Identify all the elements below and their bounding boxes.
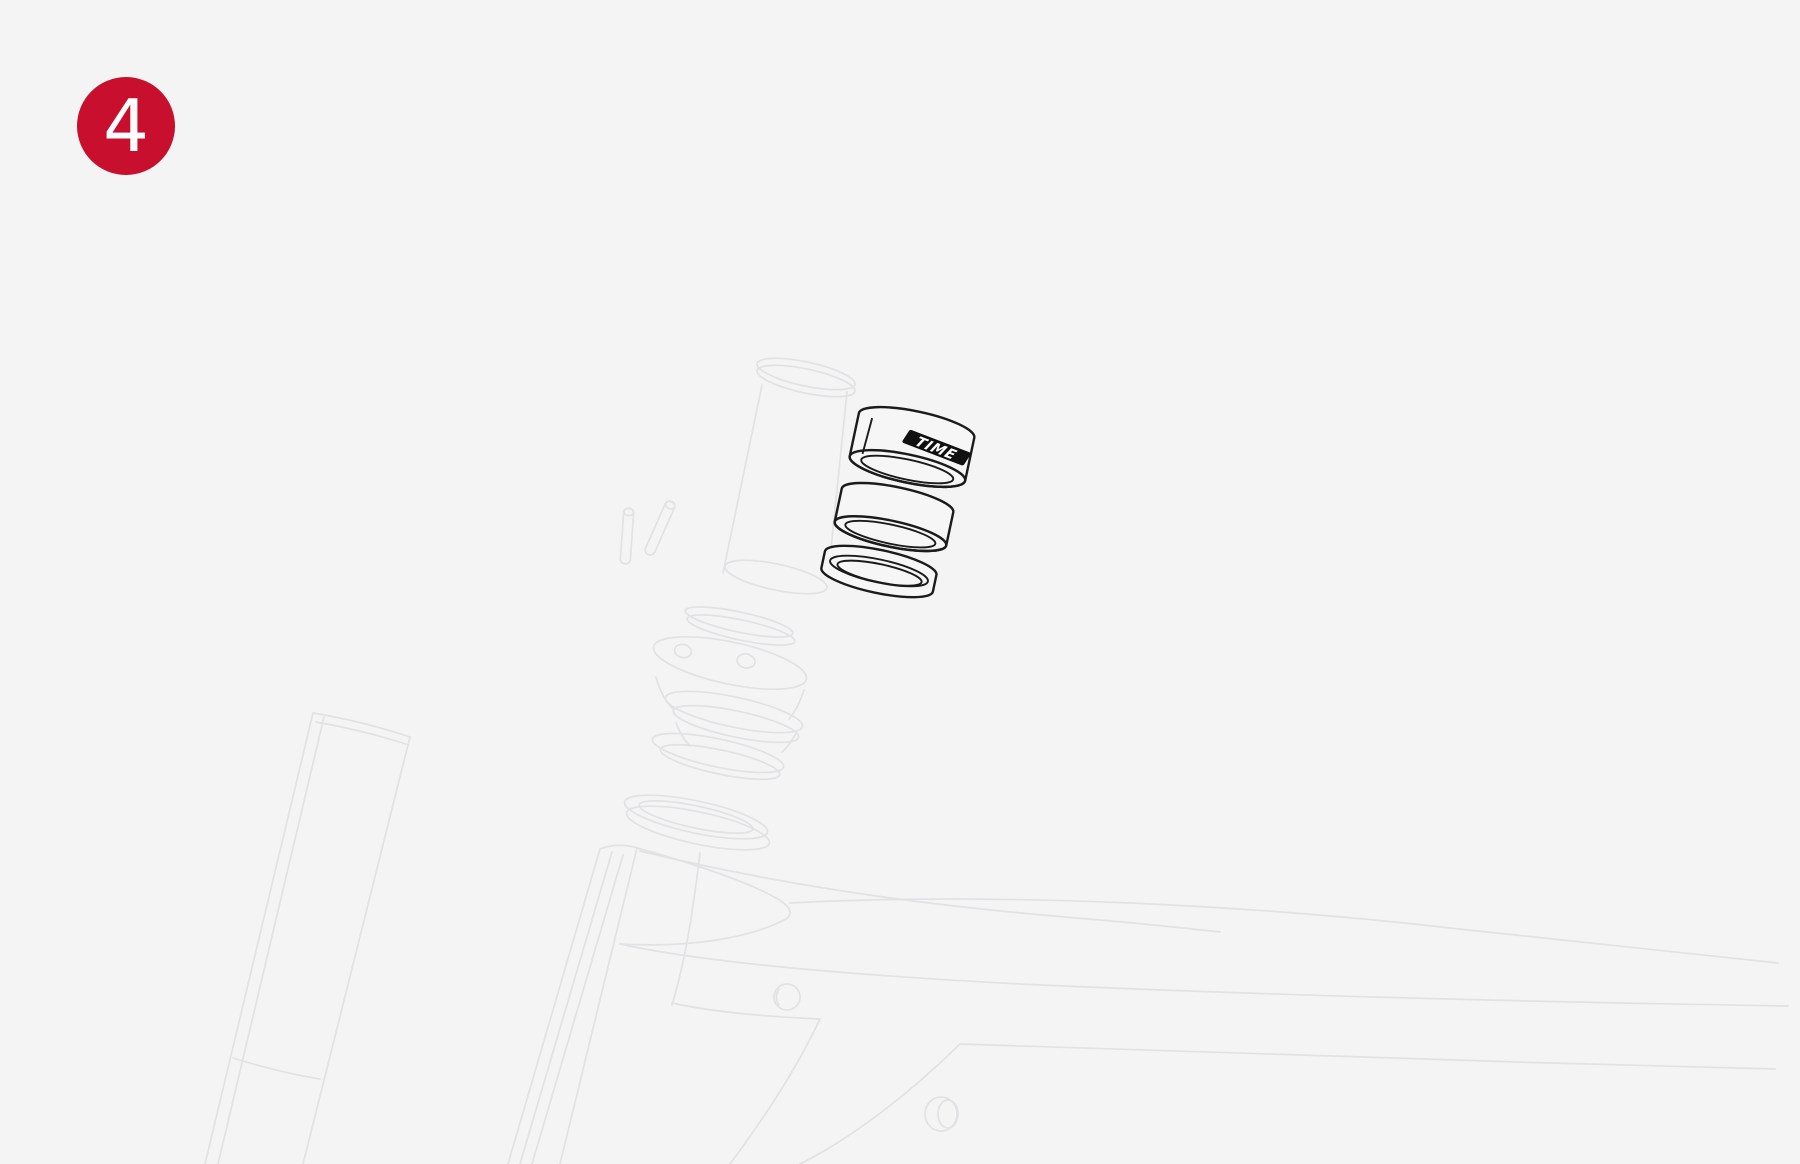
- exploded-diagram: TIME 4: [0, 0, 1800, 1164]
- headset-bearing-outline: [621, 786, 772, 859]
- fork-leg-outline: [205, 713, 410, 1164]
- frame-outline: [508, 845, 1788, 1164]
- step-badge: 4: [77, 77, 175, 175]
- headset-top-cap-outline: [649, 601, 810, 787]
- manual-step-illustration: TIME 4: [0, 0, 1800, 1164]
- clamp-pins-outline: [620, 499, 676, 564]
- spacer-top: TIME: [847, 400, 978, 495]
- step-number: 4: [103, 84, 149, 168]
